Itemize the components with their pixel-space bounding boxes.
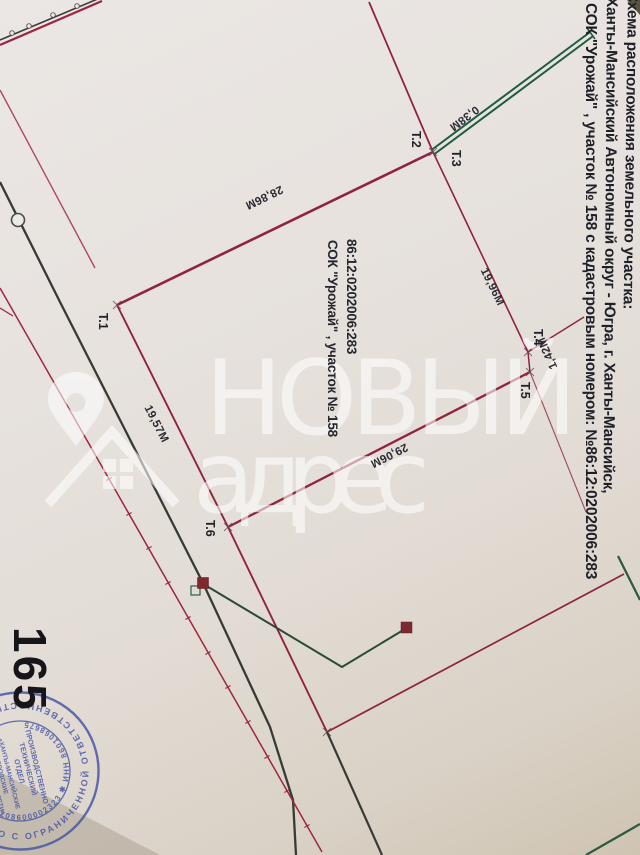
watermark-house-window: [103, 459, 133, 489]
marker-square-1: [198, 578, 209, 589]
parcel-name: СОК "Урожай" , участок № 158: [325, 240, 340, 437]
title-line-3: СОК "Урожай" , участок № 158 с кадастров…: [581, 3, 599, 579]
plot-drawing: ОБЩЕСТВО С ОГРАНИЧЕННОЙ ОТВЕТСТВЕННОСТЬЮ…: [0, 0, 640, 855]
neighbour-boundary-topleft: [0, 0, 102, 45]
point-label-t1: Т.1: [96, 313, 110, 330]
marker-square-2: [401, 622, 412, 633]
page-number: 165: [3, 627, 57, 713]
survey-point-circle: [12, 214, 25, 227]
point-label-t5: Т.5: [518, 382, 532, 399]
point-label-t2: Т.2: [409, 131, 423, 148]
watermark-brand-bottom: адрес: [193, 419, 430, 536]
title-line-1: Схема расположения земельного участка:: [619, 0, 640, 309]
point-label-t6: Т.6: [203, 520, 217, 537]
title-line-2: Ханты-Мансийский Автономный округ - Югра…: [599, 0, 620, 493]
road-edge-line-2: [327, 732, 382, 855]
green-segment-bottom-right: [586, 824, 640, 855]
annotation-arrow: [191, 578, 412, 668]
boundary-left-faint: [0, 90, 95, 268]
cadastral-scheme-photo: ОБЩЕСТВО С ОГРАНИЧЕННОЙ ОТВЕТСТВЕННОСТЬЮ…: [0, 0, 640, 855]
point-label-t3: Т.3: [449, 150, 463, 167]
green-segment-right: [618, 556, 640, 600]
green-double-line: [432, 28, 596, 154]
watermark: НОВЫЙ адрес: [48, 338, 577, 536]
parcel-cadastral-number: 86:12:0202006:283: [344, 239, 359, 354]
watermark-pin-icon: [48, 372, 104, 446]
